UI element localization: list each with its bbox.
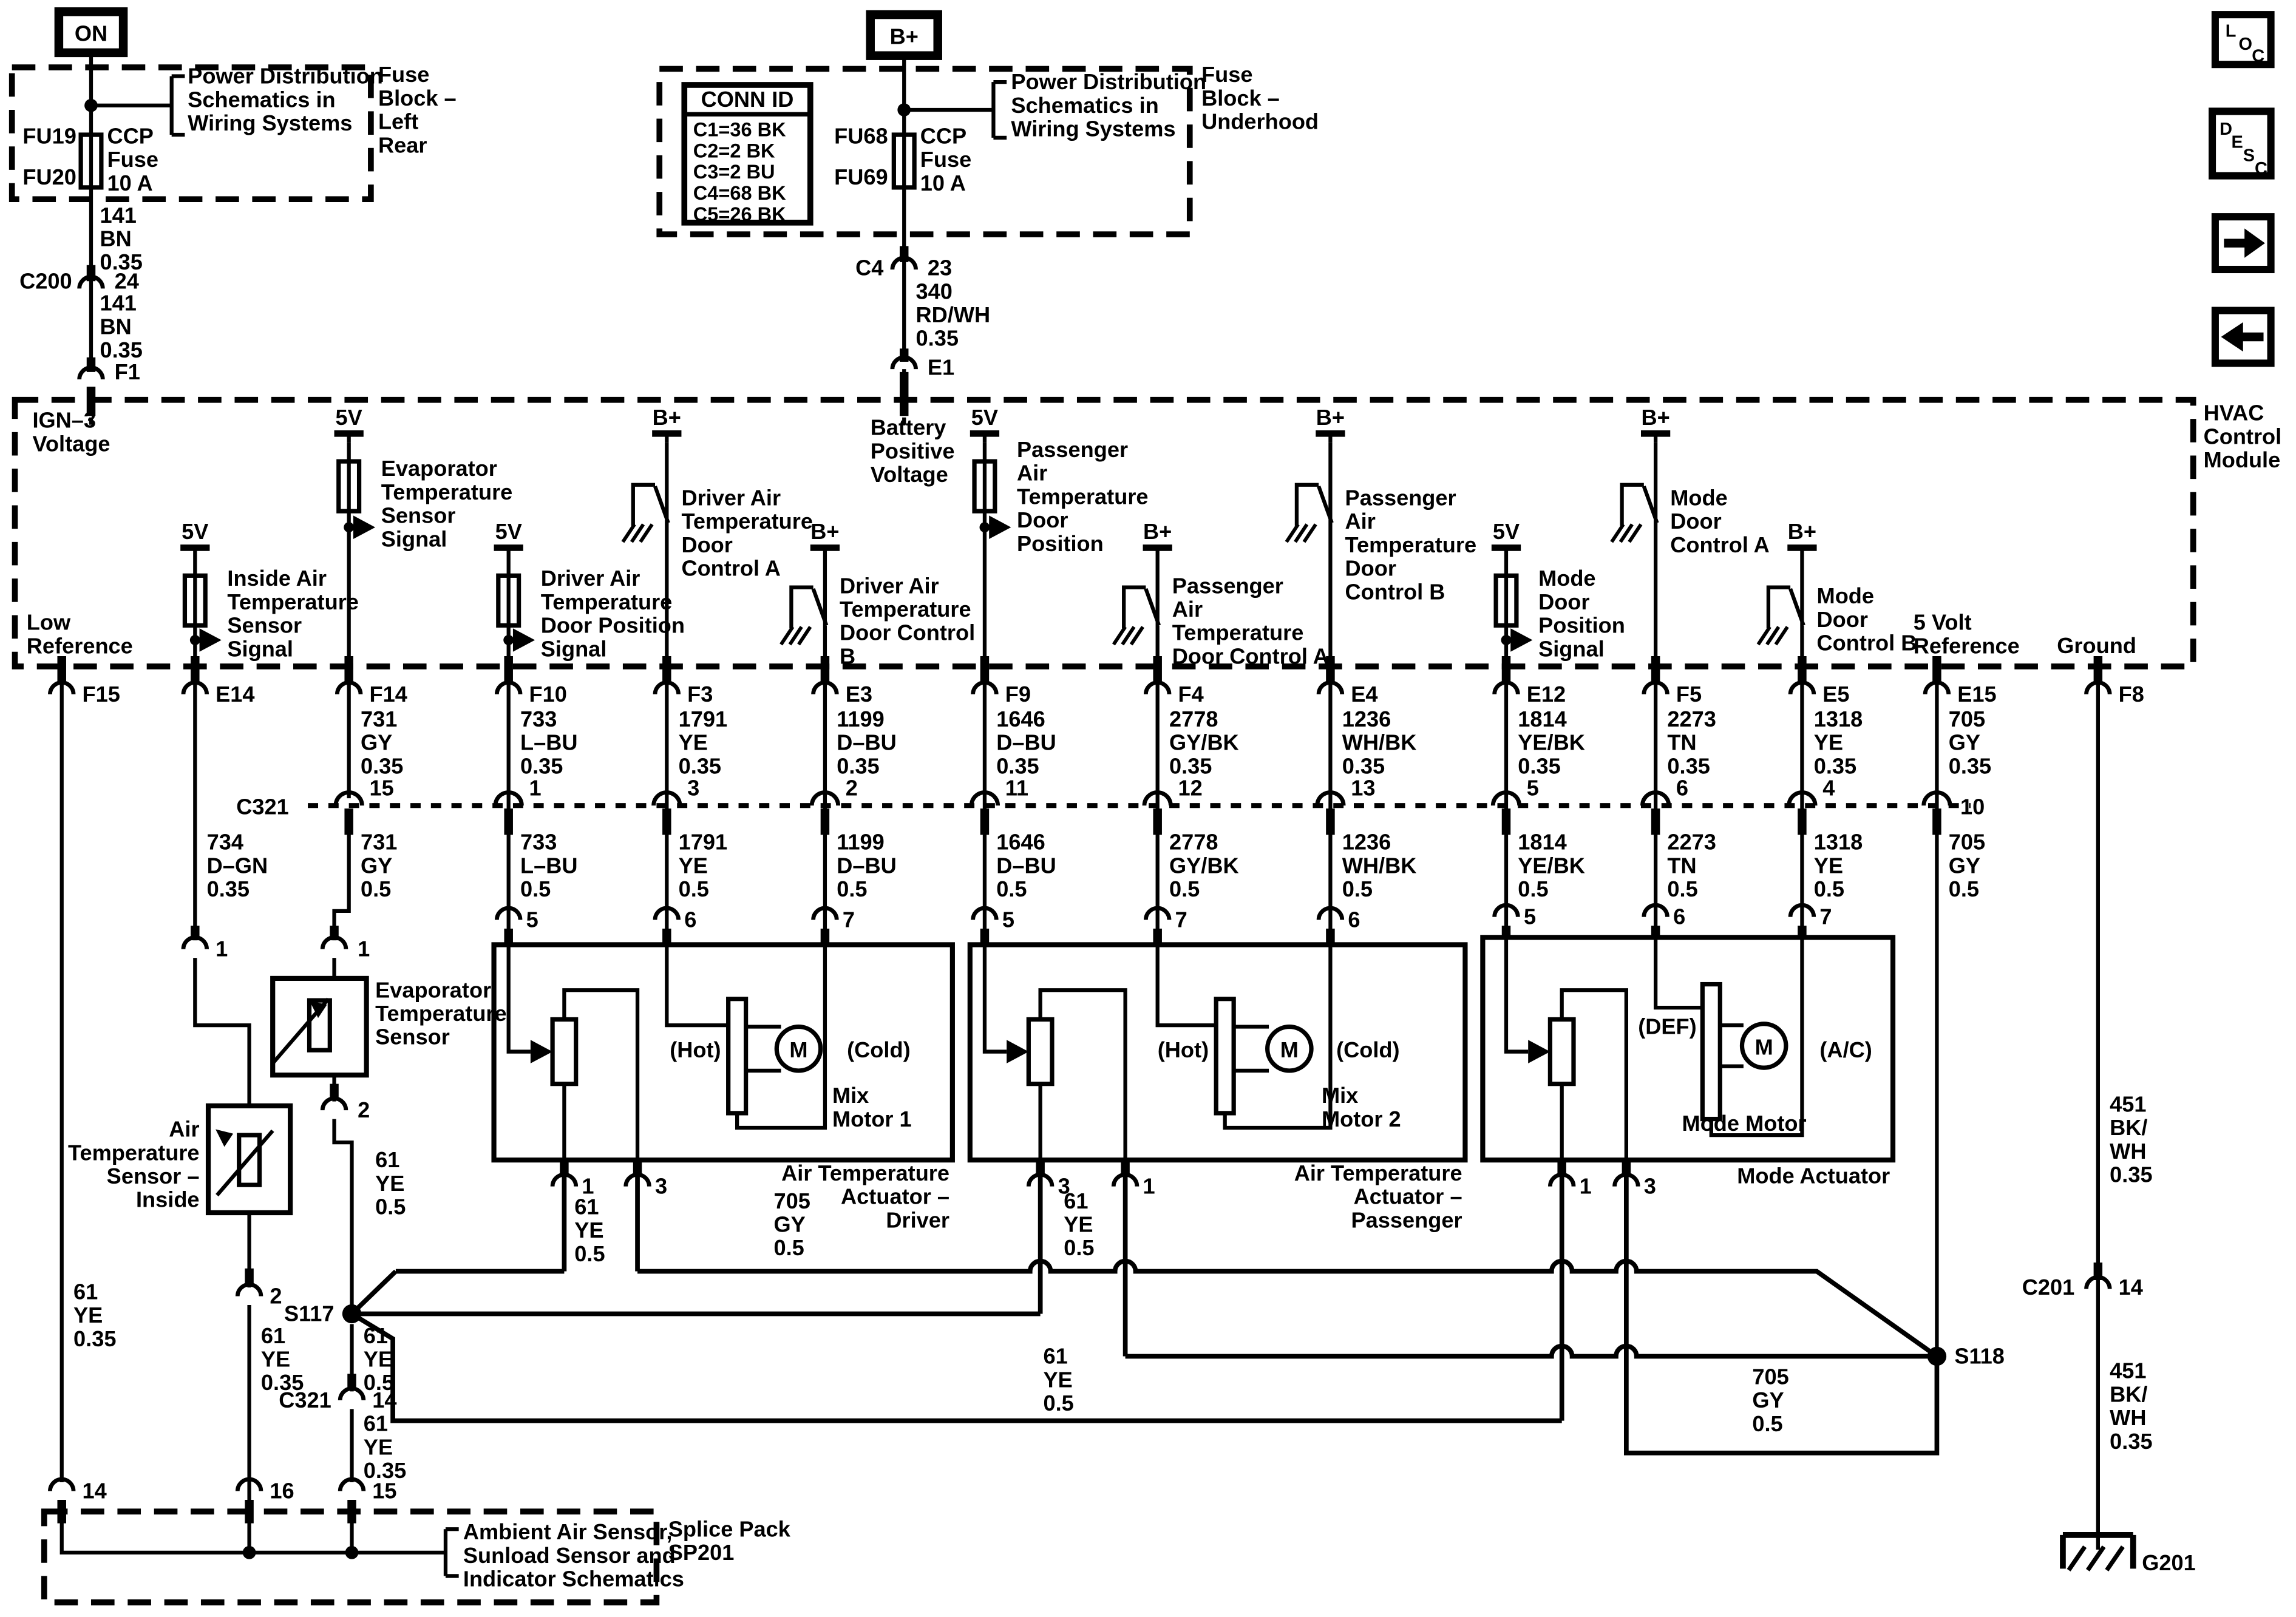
supply-bplus-label: B+ [1143,519,1172,544]
connector-c4-label: C4 [855,256,883,280]
c321-pin: 15 [369,775,393,800]
mode-door-pos-label: ModeDoorPositionSignal [1538,566,1625,661]
drive-bar-mode [1702,985,1720,1119]
wire-141-bn-upper: 141BN0.35 [100,203,142,274]
splice-pack-sp201-label: Splice PackSP201 [668,1516,791,1565]
connector-c321-label: C321 [236,795,289,819]
inside-air-sensor-label: AirTemperatureSensor –Inside [68,1117,200,1212]
wire-1199-dbu-035: 1199D–BU0.35 [837,707,897,778]
supply-5v-label: 5V [336,405,362,430]
arrow-left-icon [2221,322,2264,351]
wire-731-gy-035: 731GY0.35 [361,707,403,778]
next-page-button[interactable] [2215,217,2271,269]
desc-letter: E [2231,133,2243,152]
fuse-id-fu20: FU20 [22,164,76,189]
driver-pin-3: 3 [655,1174,667,1199]
fuse-block-underhood-label: FuseBlock –Underhood [1201,62,1319,134]
box-pin: 5 [1524,904,1536,929]
conn-id-rows: C1=36 BKC2=2 BKC3=2 BUC4=68 BKC5=26 BK [693,118,786,225]
box-pin: 6 [684,907,696,932]
pin-e14: E14 [216,682,254,707]
wire-1814-yebk-05: 1814YE/BK0.5 [1518,830,1585,901]
wire-1646-dbu-05: 1646D–BU0.5 [996,830,1056,901]
pin-e15: E15 [1957,682,1996,707]
passenger-cold-label: (Cold) [1336,1037,1400,1062]
mode-motor-m: M [1755,1034,1773,1059]
c321-pin: 2 [846,775,858,800]
wire-61-ye-035-inside: 61YE0.35 [261,1323,304,1395]
wire-1646-dbu-035: 1646D–BU0.35 [996,707,1056,778]
loc-button[interactable]: L O C [2215,15,2271,66]
splice-s117-dot [342,1304,361,1323]
passenger-control-a-label: PassengerAirTemperatureDoor Control A [1172,573,1329,668]
sp-pin-14: 14 [83,1479,107,1503]
evap-pin-1: 1 [358,937,370,961]
ground-label: Ground [2057,633,2136,658]
c201-pin-14: 14 [2119,1275,2143,1300]
wire-61-ye-05-s117: 61YE0.5 [364,1323,394,1395]
junction-dot [84,99,98,112]
evap-pin-2: 2 [358,1097,370,1122]
supply-5v-label: 5V [182,519,208,544]
evap-sensor-box [273,978,366,1075]
splice-pack-schematics-note: Ambient Air Sensor,Sunload Sensor andInd… [463,1519,684,1591]
supply-bplus-label: B+ [1788,519,1816,544]
five-volt-ref-label: 5 VoltReference [1914,610,2020,659]
driver-door-pos-label: Driver AirTemperatureDoor PositionSignal [541,566,685,661]
box-pin: 7 [843,907,855,932]
mix-motor-1-label: MixMotor 1 [832,1083,912,1131]
wire-340-rdwh: 340RD/WH0.35 [916,279,991,350]
desc-letter: C [2255,159,2267,178]
supply-5v-label: 5V [495,519,522,544]
junction-dot [897,103,911,117]
battery-positive-voltage-label: BatteryPositiveVoltage [871,415,955,487]
ccp-fuse-label-left: CCPFuse10 A [107,123,158,195]
driver-control-b-label: Driver AirTemperatureDoor ControlB [840,573,975,668]
wire-451-bkwh-upper: 451BK/WH0.35 [2110,1091,2152,1187]
inside-pin-2: 2 [270,1284,282,1309]
fuse-id-fu68: FU68 [834,123,888,148]
c200-pin-24: 24 [115,268,139,293]
pin-f3: F3 [687,682,713,707]
pin-f8: F8 [2119,682,2144,707]
box-pin: 5 [1002,907,1014,932]
desc-letter: D [2220,120,2232,139]
supply-5v-label: 5V [1493,519,1520,544]
power-dist-note-underhood: Power DistributionSchematics inWiring Sy… [1011,69,1206,141]
c321-pin: 5 [1527,775,1539,800]
wire-705-gy-05: 705GY0.5 [1949,830,1985,901]
wire-733-lbu-05: 733L–BU0.5 [520,830,578,901]
wire-2273-tn-05: 2273TN0.5 [1667,830,1716,901]
inside-pin-1: 1 [216,937,228,961]
pin-f9: F9 [1005,682,1031,707]
mode-control-a-label: ModeDoorControl A [1670,485,1769,557]
box-pin: 7 [1819,904,1832,929]
module-pin-e1: E1 [928,355,954,380]
drive-bar-driver [729,999,746,1113]
pin-f10: F10 [529,682,566,707]
ign3-voltage-label: IGN–3Voltage [32,408,110,456]
supply-bplus-label: B+ [1316,405,1345,430]
supply-bplus-label: B+ [810,519,839,544]
wire-733-lbu-035: 733L–BU0.35 [520,707,578,778]
junction-dot [345,1546,359,1559]
wire-61-ye-05-pass3: 61YE0.5 [1064,1188,1094,1260]
passenger-control-b-label: PassengerAirTemperatureDoorControl B [1345,485,1477,604]
wire-61-ye-035-f15: 61YE0.35 [73,1279,116,1351]
loc-letter: O [2239,35,2253,54]
wire-1791-ye-05: 1791YE0.5 [679,830,728,901]
pin-f5: F5 [1676,682,1702,707]
wire-1199-dbu-05: 1199D–BU0.5 [837,830,897,901]
evap-signal-label: EvaporatorTemperatureSensorSignal [381,456,513,551]
wire-61-ye-05-driver1: 61YE0.5 [574,1194,605,1266]
pot-mode [1550,1019,1574,1083]
power-dist-note-left: Power DistributionSchematics inWiring Sy… [188,64,383,135]
module-pin-f1: F1 [115,359,140,384]
mode-pin-3: 3 [1644,1174,1656,1199]
sp-pin-15: 15 [372,1479,396,1503]
pin-f4: F4 [1178,682,1203,707]
low-reference-label: LowReference [27,610,133,659]
wire-1318-ye-035: 1318YE0.35 [1814,707,1863,778]
wire-2778-gybk-035: 2778GY/BK0.35 [1169,707,1239,778]
wire-705-gy-05-detour: 705GY0.5 [1752,1364,1788,1436]
mode-control-b-label: ModeDoorControl B [1817,583,1917,655]
c321-pin: 13 [1351,775,1375,800]
splice-s118-label: S118 [1954,1344,2005,1369]
connector-c201-label: C201 [2022,1275,2075,1300]
passenger-pin-1: 1 [1143,1174,1155,1199]
arrow-right-icon [2224,228,2265,257]
driver-control-a-label: Driver AirTemperatureDoorControl A [681,485,813,580]
wire-1791-ye-035: 1791YE0.35 [679,707,728,778]
wire-1236-whbk-05: 1236WH/BK0.5 [1342,830,1417,901]
pin-e12: E12 [1527,682,1566,707]
dashed-borders [12,67,2193,1602]
ignition-on-label: ON [75,21,107,46]
wire-141-bn-lower: 141BN0.35 [100,291,142,362]
pin-e3: E3 [846,682,872,707]
wire-731-gy-05: 731GY0.5 [361,830,397,901]
c4-pin-23: 23 [928,256,952,280]
evap-sensor-label: EvaporatorTemperatureSensor [375,977,507,1049]
fuse-block-left-rear-label: FuseBlock –LeftRear [378,62,457,157]
wire-61-ye-05-bus: 61YE0.5 [1043,1344,1073,1415]
wire-1318-ye-05: 1318YE0.5 [1814,830,1863,901]
passenger-door-pos-label: PassengerAirTemperatureDoorPosition [1017,437,1149,556]
wire-1814-yebk-035: 1814YE/BK0.35 [1518,707,1585,778]
mode-motor-label: Mode Motor [1682,1111,1807,1136]
wire-734-dgn-035: 734D–GN0.35 [207,830,268,901]
pin-f14: F14 [369,682,407,707]
passenger-motor-m: M [1280,1037,1299,1062]
splice-s117-label: S117 [284,1301,335,1326]
wire-1236-whbk-035: 1236WH/BK0.35 [1342,707,1417,778]
c321-pin: 11 [1005,775,1028,800]
wire-61-ye-05-evap: 61YE0.5 [375,1147,406,1219]
c321-pin: 12 [1178,775,1202,800]
connector-c321-label-lower: C321 [279,1388,331,1412]
box-pin: 6 [1348,907,1360,932]
connector-c200-label: C200 [19,268,72,293]
driver-motor-m: M [789,1037,807,1062]
mode-def-label: (DEF) [1638,1014,1696,1039]
hvac-wiring-diagram: L O C D E S C ON Power DistributionSchem… [0,0,2296,1617]
pin-f15: F15 [83,682,120,707]
pin-e4: E4 [1351,682,1377,707]
mode-pin-1: 1 [1580,1174,1592,1199]
pin-e5: E5 [1822,682,1849,707]
c321-pin: 3 [687,775,699,800]
battery-bplus-label: B+ [890,24,919,49]
mode-actuator-name: Mode Actuator [1737,1164,1890,1188]
drive-bar-passenger [1216,999,1234,1113]
box-pin: 7 [1175,907,1187,932]
wire-705-gy-05-driver3: 705GY0.5 [773,1188,810,1260]
conn-id-title: CONN ID [701,87,794,112]
wire-705-gy-035: 705GY0.35 [1949,707,1991,778]
loc-letter: C [2252,46,2264,66]
c321-pin: 1 [529,775,541,800]
desc-letter: S [2243,146,2255,165]
splice-s118-dot [1927,1347,1946,1366]
box-pin: 6 [1673,904,1685,929]
c321-pin: 6 [1676,775,1688,800]
fuse-id-fu69: FU69 [834,164,888,189]
wire-451-bkwh-lower: 451BK/WH0.35 [2110,1358,2152,1454]
junction-dot [243,1546,256,1559]
mode-ac-label: (A/C) [1819,1037,1872,1062]
desc-button[interactable]: D E S C [2212,111,2271,178]
c321-pin: 10 [1960,795,1985,819]
driver-cold-label: (Cold) [847,1037,911,1062]
nav-buttons: L O C D E S C [2212,15,2271,363]
hvac-module-label: HVACControlModule [2204,401,2282,472]
c321-pin-14: 14 [372,1388,396,1412]
ccp-fuse-label-underhood: CCPFuse10 A [920,123,971,195]
ground-g201-label: G201 [2142,1550,2196,1575]
c321-pin: 4 [1822,775,1835,800]
loc-letter: L [2226,21,2237,41]
prev-page-button[interactable] [2215,311,2271,364]
inside-air-signal-label: Inside AirTemperatureSensorSignal [227,566,359,661]
pot-passenger [1028,1019,1052,1083]
passenger-actuator-name: Air TemperatureActuator –Passenger [1294,1161,1462,1232]
supply-bplus-label: B+ [653,405,681,430]
wire-2778-gybk-05: 2778GY/BK0.5 [1169,830,1239,901]
wire-2273-tn-035: 2273TN0.35 [1667,707,1716,778]
supply-5v-label: 5V [971,405,998,430]
box-pin: 5 [526,907,538,932]
driver-hot-label: (Hot) [670,1037,721,1062]
supply-bplus-label: B+ [1641,405,1669,430]
sp-pin-16: 16 [270,1479,294,1503]
fuse-id-fu19: FU19 [22,123,76,148]
passenger-hot-label: (Hot) [1158,1037,1209,1062]
mix-motor-2-label: MixMotor 2 [1322,1083,1401,1131]
pot-driver [552,1019,576,1083]
